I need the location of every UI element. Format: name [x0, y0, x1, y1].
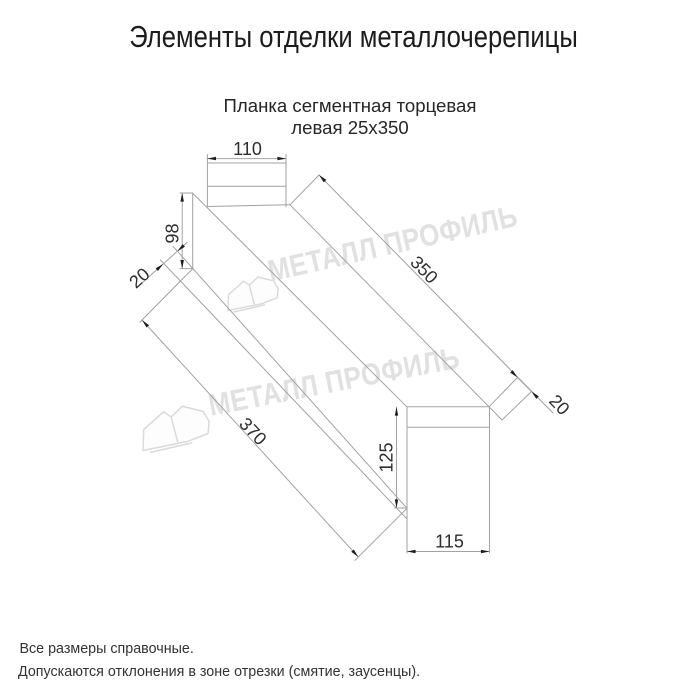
svg-text:левая 25х350: левая 25х350 — [291, 117, 408, 138]
svg-text:Все размеры справочные.: Все размеры справочные. — [20, 641, 194, 657]
svg-text:Планка сегментная торцевая: Планка сегментная торцевая — [224, 95, 477, 116]
svg-text:Допускаются отклонения в зоне: Допускаются отклонения в зоне отрезки (с… — [18, 664, 420, 680]
svg-text:Элементы отделки металлочерепи: Элементы отделки металлочерепицы — [129, 19, 578, 54]
svg-text:110: 110 — [233, 139, 262, 159]
svg-text:115: 115 — [435, 532, 464, 552]
svg-text:125: 125 — [377, 442, 397, 472]
svg-text:98: 98 — [163, 223, 183, 243]
